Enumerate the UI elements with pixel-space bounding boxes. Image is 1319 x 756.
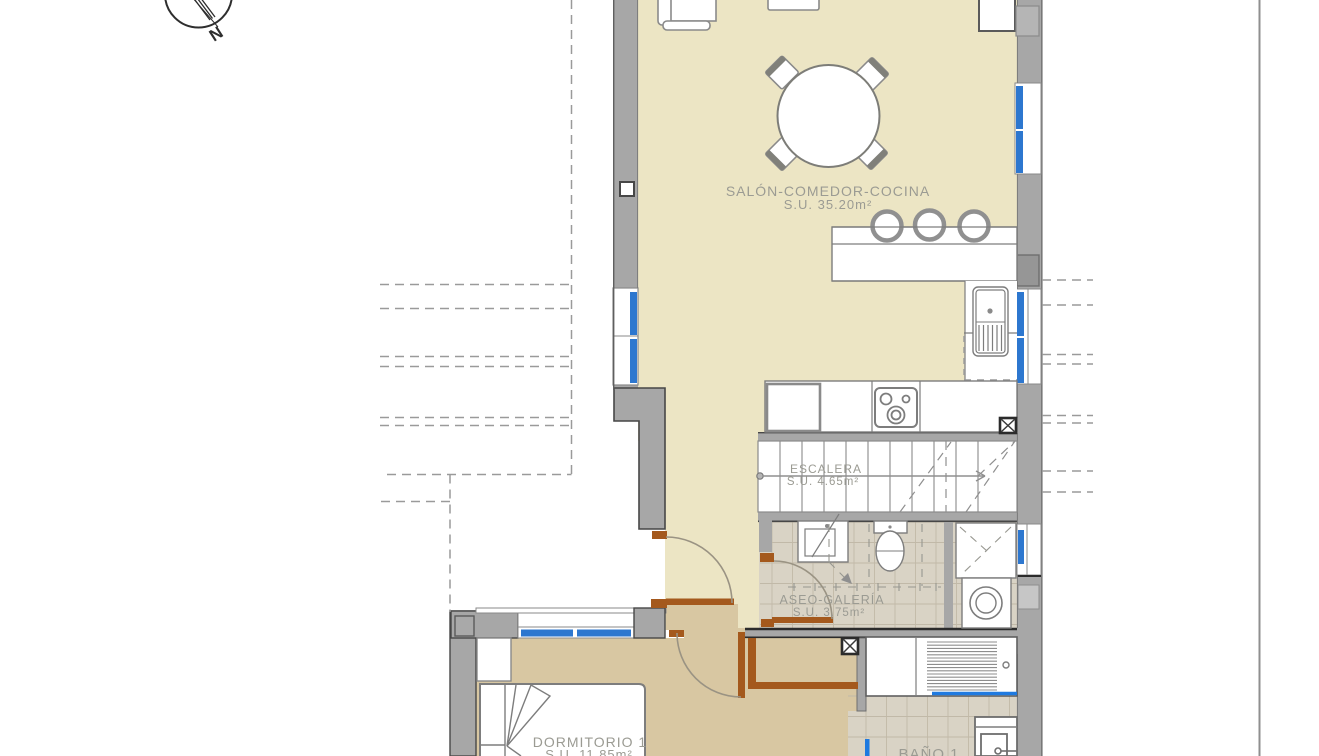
- svg-text:BAÑO 1: BAÑO 1: [898, 746, 959, 756]
- svg-text:S.U. 35.20m²: S.U. 35.20m²: [784, 197, 873, 212]
- svg-text:S.U. 4.65m²: S.U. 4.65m²: [787, 476, 859, 488]
- svg-text:ASEO-GALERÍA: ASEO-GALERÍA: [779, 592, 884, 607]
- svg-text:S.U. 3.75m²: S.U. 3.75m²: [793, 607, 865, 619]
- svg-text:S.U. 11.85m²: S.U. 11.85m²: [545, 747, 633, 756]
- svg-text:ESCALERA: ESCALERA: [790, 462, 862, 476]
